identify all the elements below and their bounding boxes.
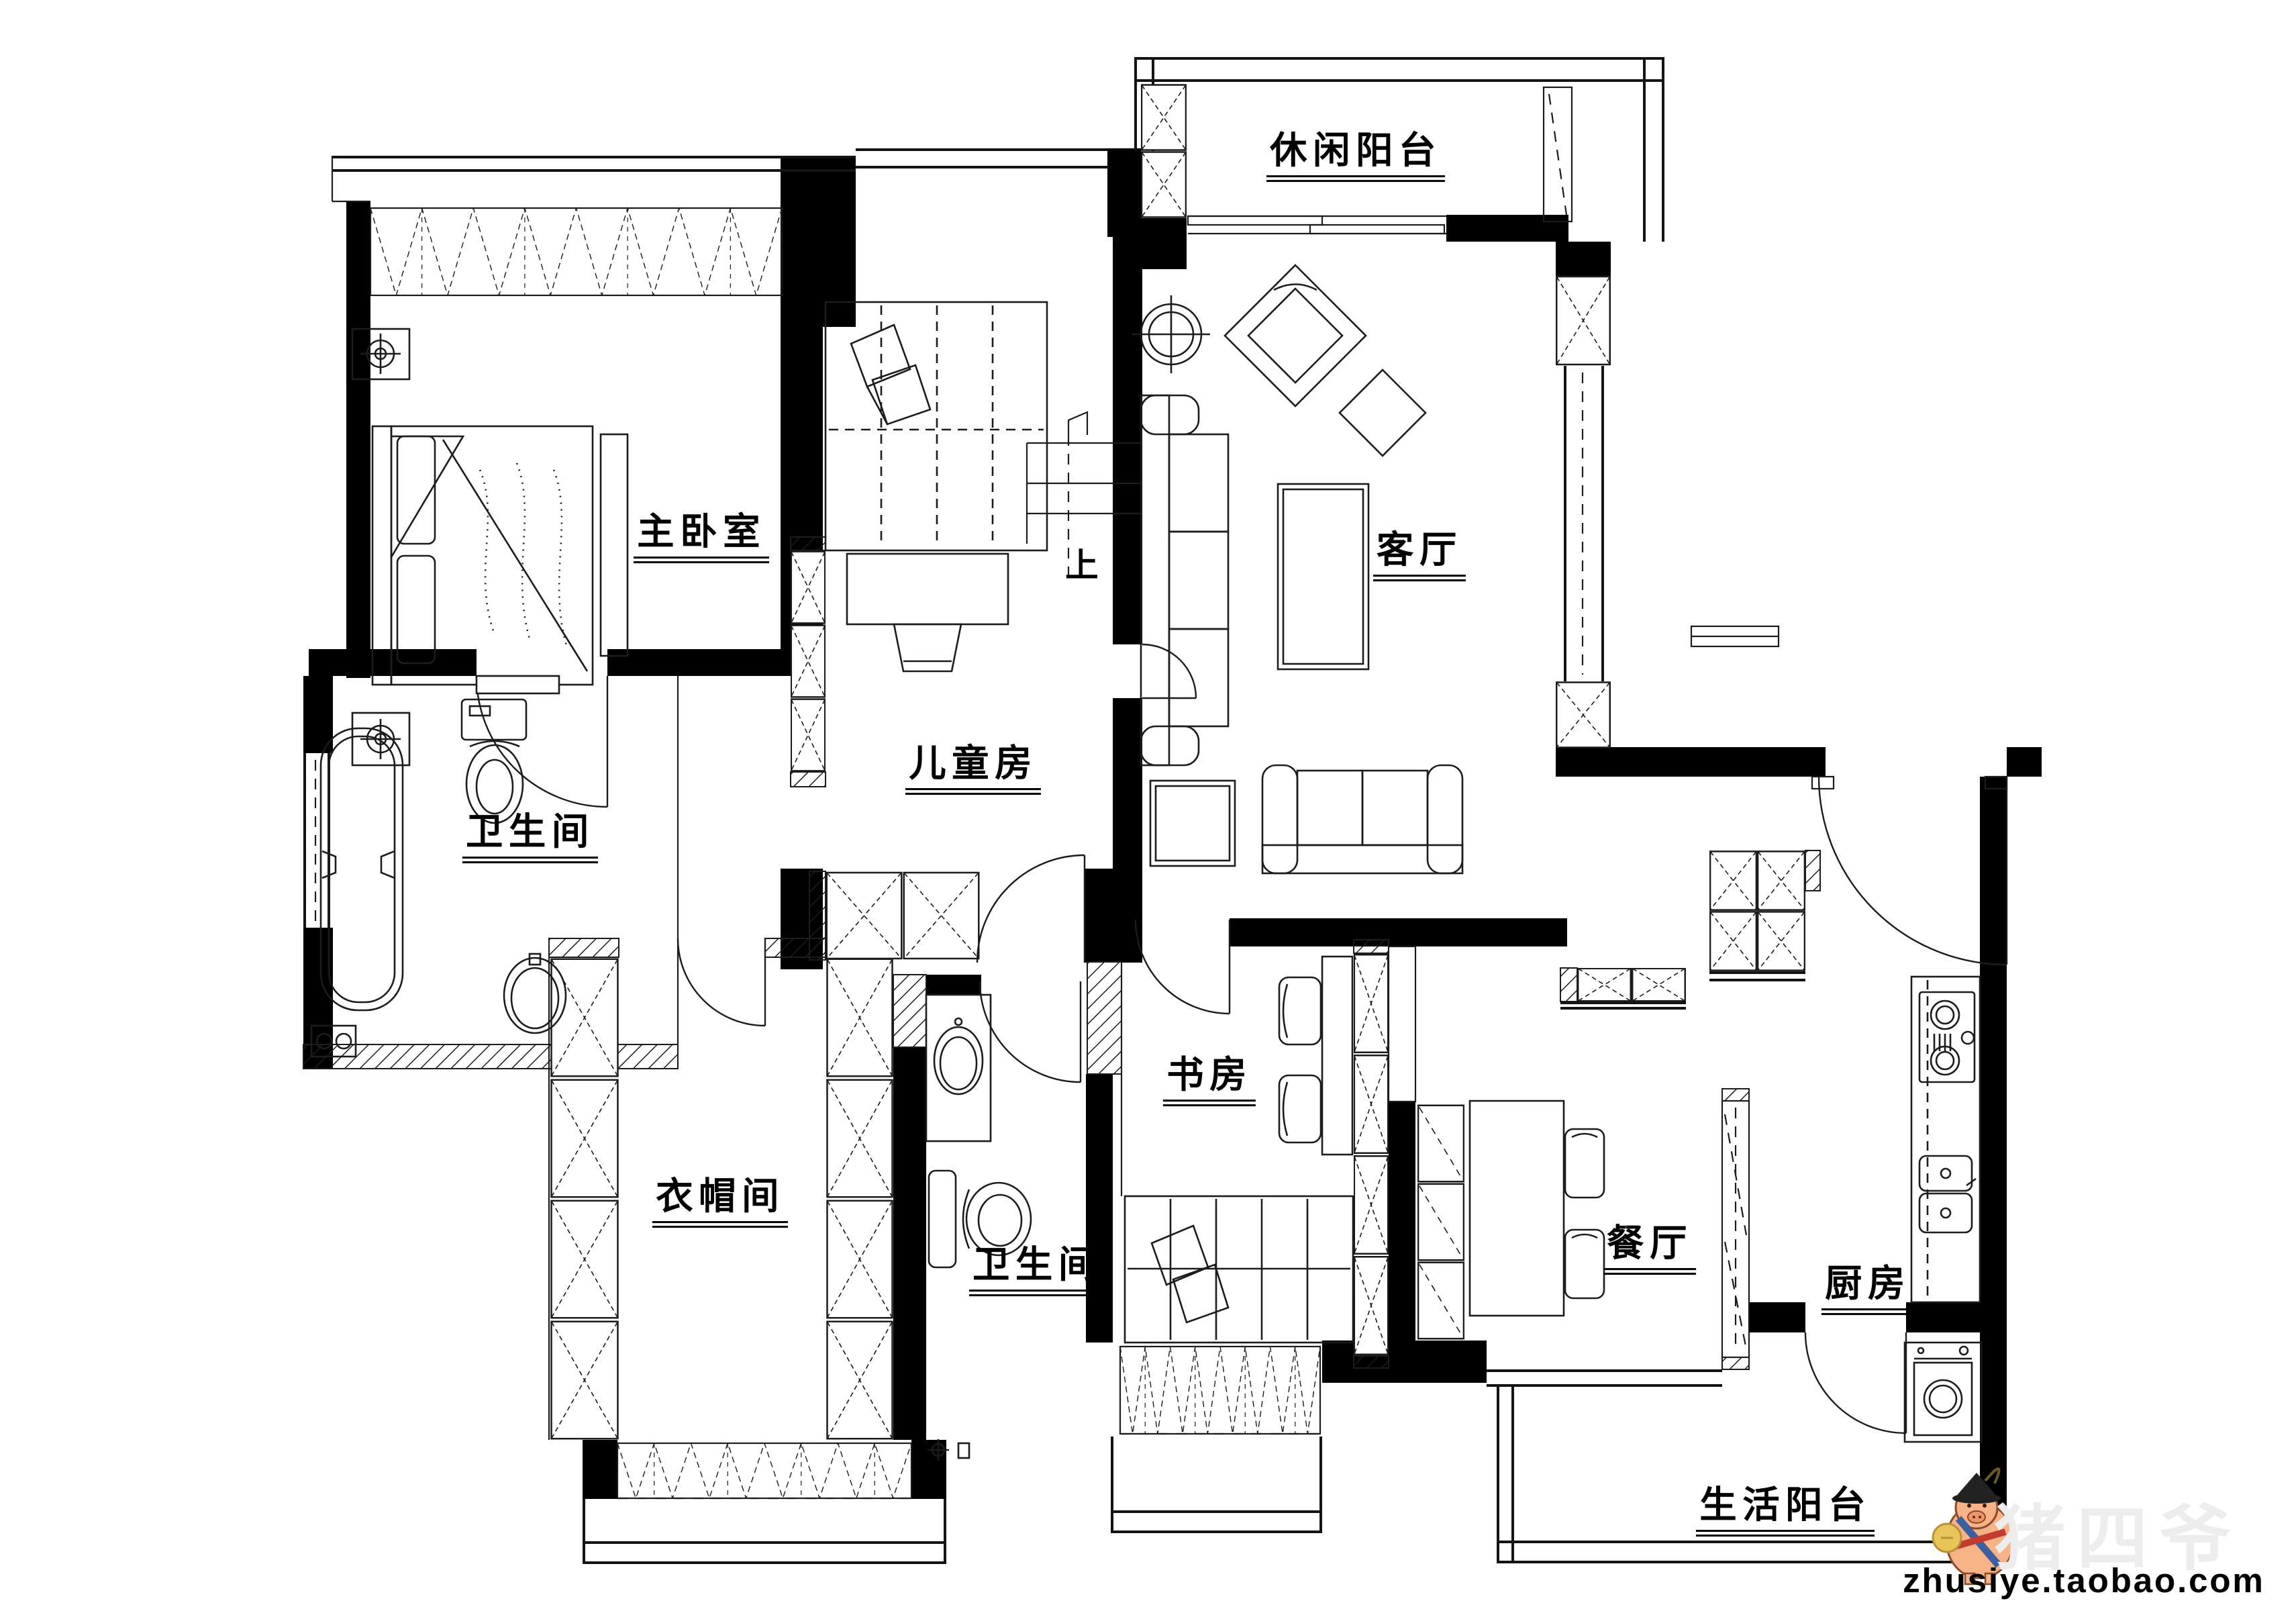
label-master-bathroom: 卫生间 (462, 811, 598, 863)
label-cloakroom: 衣帽间 (652, 1175, 788, 1228)
furniture-second-bathroom (926, 995, 1031, 1461)
furniture-children-room (826, 302, 1047, 671)
label-study: 书房 (1163, 1054, 1256, 1106)
floor-plan-drawing (0, 0, 2296, 1607)
label-stairs-up: 上 (1065, 538, 1099, 587)
label-utility-balcony: 生活阳台 (1696, 1484, 1875, 1537)
label-dining-room: 餐厅 (1603, 1222, 1696, 1275)
furniture-kitchen (1911, 977, 1980, 1302)
furniture-dining-room (1470, 1101, 1604, 1316)
furniture-study (1125, 957, 1353, 1343)
watermark-site-text: zhusiye.taobao.com (1903, 1561, 2265, 1600)
label-second-bathroom: 卫生间 (969, 1244, 1105, 1296)
label-master-bedroom: 主卧室 (634, 511, 769, 563)
label-leisure-balcony: 休闲阳台 (1266, 130, 1445, 182)
label-kitchen: 厨房 (1821, 1263, 1914, 1315)
floor-plan-page: 休闲阳台 主卧室 儿童房 客厅 卫生间 衣帽间 卫生间 书房 餐厅 厨房 生活阳… (0, 0, 2296, 1607)
furniture-master-bathroom (311, 676, 566, 1057)
label-living-room: 客厅 (1373, 529, 1466, 581)
label-children-room: 儿童房 (905, 742, 1041, 795)
furniture-utility-balcony (1905, 1343, 1981, 1442)
